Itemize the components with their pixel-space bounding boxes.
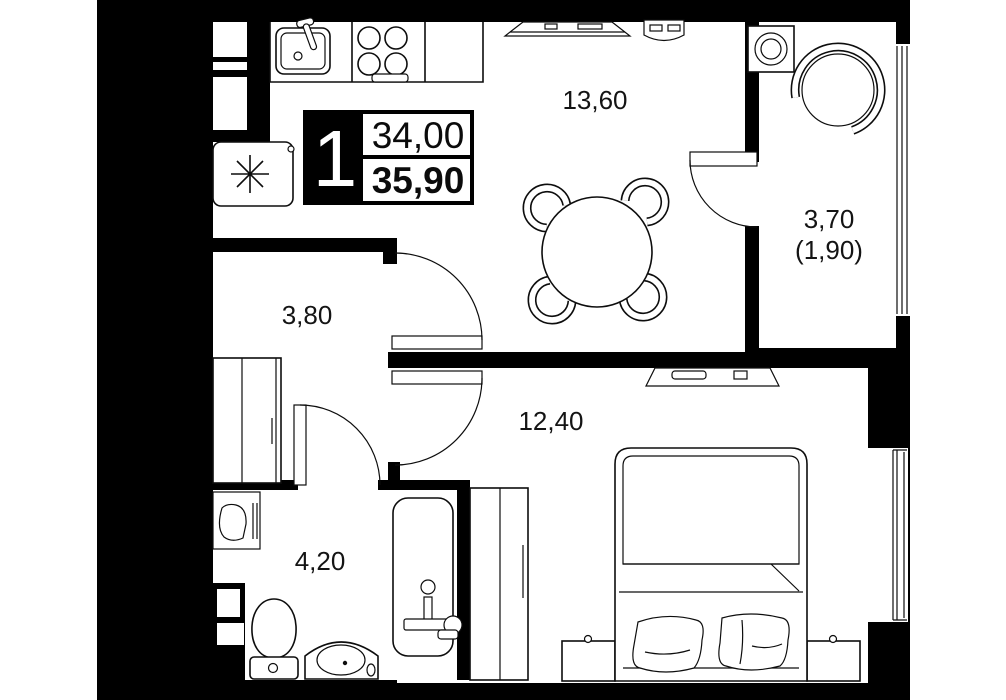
towel-shelf-icon bbox=[213, 492, 260, 549]
label-kitchen-living-area: 13,60 bbox=[562, 85, 627, 115]
bedroom-tv-icon bbox=[646, 368, 779, 386]
toilet-icon bbox=[250, 599, 298, 679]
label-hallway-area: 3,80 bbox=[282, 300, 333, 330]
boiler-icon bbox=[748, 26, 794, 72]
label-balcony-area-coefficient: (1,90) bbox=[795, 235, 863, 265]
unit-info-card: 1 34,00 35,90 bbox=[305, 112, 472, 203]
hallway-wardrobe-icon bbox=[213, 358, 281, 483]
dining-table-icon bbox=[542, 197, 652, 307]
label-bathroom-area: 4,20 bbox=[295, 546, 346, 576]
bathtub-icon bbox=[393, 498, 462, 656]
washing-machine-icon bbox=[213, 142, 294, 206]
unit-area-total: 35,90 bbox=[372, 160, 465, 201]
floor-plan-drawing: 1 34,00 35,90 13,60 3,70 (1,90) 3,80 12,… bbox=[0, 0, 1006, 700]
media-cabinet-icon bbox=[644, 20, 684, 41]
double-bed-icon bbox=[615, 448, 807, 681]
floor-plan: 1 34,00 35,90 13,60 3,70 (1,90) 3,80 12,… bbox=[0, 0, 1006, 700]
label-balcony-area: 3,70 bbox=[804, 204, 855, 234]
wall-shaft-niches bbox=[217, 589, 244, 645]
unit-area-main: 34,00 bbox=[372, 115, 465, 156]
bedroom-wardrobe-icon bbox=[470, 488, 528, 680]
tv-console-icon bbox=[505, 22, 630, 36]
label-bedroom-area: 12,40 bbox=[518, 406, 583, 436]
unit-rooms-count: 1 bbox=[313, 114, 358, 203]
